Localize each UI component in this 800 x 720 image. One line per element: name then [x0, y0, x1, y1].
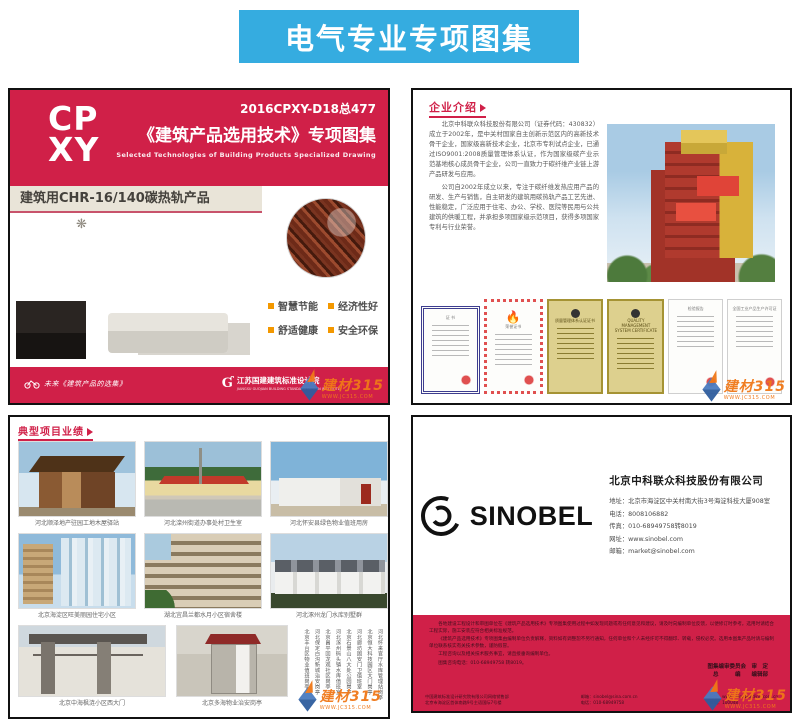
certificate: 🔥 荣誉证书 — [484, 299, 543, 394]
certificate-label: 检验报告 — [688, 306, 704, 311]
red-seal-icon — [461, 375, 471, 385]
page: 电气专业专项图集 CP XY 2016CPXY-D18总477 《建筑产品选用技… — [0, 0, 800, 720]
project-caption: 北京中海枫涟小区西大门 — [18, 700, 166, 707]
certificate-label: QUALITY MANAGEMENT SYSTEM CERTIFICATE — [613, 318, 659, 333]
jc315-text: 建材315 — [320, 691, 382, 704]
project-caption: 河北怀安县绿色物业值班用房 — [270, 520, 388, 527]
feature-item: 经济性好 — [328, 298, 386, 313]
project-item: 河北涿州龙门水库别墅群 — [270, 533, 388, 619]
jc315-watermark: 建材315WWW.JC315.COM — [704, 381, 786, 401]
feature-label: 经济性好 — [338, 298, 378, 313]
project-caption: 河北滦州街道办事处村卫生室 — [144, 520, 262, 527]
certificate-textlines — [557, 328, 594, 362]
back-cover-top: SINOBEL 北京中科联众科技股份有限公司 地址：北京市海淀区中关村南大街3号… — [413, 417, 790, 615]
cover-side-panel: 智慧节能 经济性好 舒适健康 安全环保 — [262, 186, 388, 367]
contact-website: 网址：www.sinobel.com — [609, 534, 785, 547]
publisher-mark-icon: Ɠ — [222, 376, 233, 391]
project-caption: 湖北宜昌兰都水月小区宿舍楼 — [144, 612, 262, 619]
certificate-textlines — [677, 316, 714, 350]
jc315-text: 建材315 — [322, 380, 384, 393]
band-footer-col: 中国建筑标准设计研究院有限公司网络销售部 北京市海淀区首体南路9号主语国际7号楼 — [425, 694, 509, 706]
vertical-list-item: 北京恒大科技园区大门岗亭 — [365, 629, 374, 695]
page-title-banner: 电气专业专项图集 — [239, 10, 579, 63]
bullet-icon — [328, 303, 334, 309]
band-footer-col: 邮箱：sinobel@sina.com.cn 电话：010-68949758 — [581, 694, 638, 706]
projects-section-header: 典型项目业绩 — [18, 423, 93, 441]
contact-block: 北京中科联众科技股份有限公司 地址：北京市海淀区中关村南大街3号海淀科技大厦90… — [609, 473, 785, 559]
vertical-list-item: 北京石景山八大处公园岗亭 — [344, 629, 353, 695]
jc315-watermark: 建材315WWW.JC315.COM — [705, 690, 787, 710]
project-item: 河北滦州街道办事处村卫生室 — [144, 441, 262, 527]
jc315-logo-icon — [298, 687, 316, 711]
signature-line: 总 编 编辑部 — [707, 671, 768, 679]
sinobel-logo-text: SINOBEL — [470, 501, 594, 532]
certificate-textlines — [495, 334, 532, 368]
cpxy-logo: CP XY — [48, 103, 99, 165]
bullet-icon — [268, 327, 274, 333]
signature-block: 图集编审委员会 审 定 总 编 编辑部 — [707, 663, 768, 679]
jc315-url: WWW.JC315.COM — [320, 705, 382, 711]
certificate-textlines — [617, 338, 654, 372]
project-item: 湖北宜昌兰都水月小区宿舍楼 — [144, 533, 262, 619]
sinobel-logo: SINOBEL — [418, 493, 594, 539]
feature-label: 舒适健康 — [278, 322, 318, 337]
contact-address: 地址：北京市海淀区中关村南大街3号海淀科技大厦908室 — [609, 496, 785, 509]
jc315-text: 建材315 — [724, 381, 786, 394]
carbon-rail-product-photo — [286, 198, 366, 278]
emblem-icon — [571, 309, 580, 318]
project-photo — [18, 625, 166, 697]
project-photo — [270, 441, 388, 517]
band-paragraph: 各地建设工程设计和审图单位在《建筑产品选用技术》专项图集使用过程中如发现问题或有… — [429, 622, 774, 635]
project-photo — [270, 533, 388, 609]
certificate-label: 质量管理体系认证证书 — [555, 318, 595, 323]
projects-page-image[interactable]: 典型项目业绩 河北顺泽地产驻园工地木屋驿站 河北滦州街道办事处村卫生室 河北怀安… — [8, 415, 390, 719]
vertical-list-item: 河北保定白沟新城治安岗亭 — [313, 629, 322, 695]
feature-list: 智慧节能 经济性好 舒适健康 安全环保 — [268, 298, 386, 337]
intro-paragraph: 北京中科联众科技股份有限公司（证券代码：430832）成立于2002年，是中关村… — [429, 120, 599, 180]
project-item: 北京海淀区旺美丽园住宅小区 — [18, 533, 136, 619]
certificate: 质量管理体系认证证书 — [547, 299, 604, 394]
project-caption: 北京多海物业治安岗亭 — [176, 700, 288, 707]
certificate-label: 全国工业产品生产许可证 — [733, 306, 777, 311]
project-item: 河北顺泽地产驻园工地木屋驿站 — [18, 441, 136, 527]
flame-icon: 🔥 — [506, 310, 521, 324]
jc315-watermark: 建材315WWW.JC315.COM — [302, 380, 384, 400]
back-cover-image[interactable]: SINOBEL 北京中科联众科技股份有限公司 地址：北京市海淀区中关村南大街3号… — [411, 415, 792, 713]
company-intro-image[interactable]: 企业介绍 北京中科联众科技股份有限公司（证券代码：430832）成立于2002年… — [411, 88, 792, 405]
certificate-textlines — [432, 325, 469, 359]
jc315-text: 建材315 — [725, 690, 787, 703]
project-photo — [18, 533, 136, 609]
band-paragraph: 工程咨询以及相关技术服务事宜，请直接垂询编制单位。 — [429, 652, 774, 659]
company-building-photo — [607, 124, 775, 282]
product-title: 建筑用CHR-16/140碳热轨产品 — [10, 186, 262, 213]
intro-section-header: 企业介绍 — [429, 99, 486, 118]
cover-footer-slogan: 未来《建筑产品的选集》 — [44, 379, 127, 389]
cover-footer-left: 未来《建筑产品的选集》 — [24, 379, 127, 389]
red-seal-icon — [524, 375, 534, 385]
chandelier-decor: ❋ — [76, 217, 87, 232]
certificate-label: 荣誉证书 — [505, 324, 521, 329]
jc315-url: WWW.JC315.COM — [724, 395, 786, 401]
bicycle-icon — [24, 379, 40, 389]
jc315-url: WWW.JC315.COM — [322, 394, 384, 400]
feature-label: 安全环保 — [338, 322, 378, 337]
certificate: 证 书 — [421, 306, 480, 394]
feature-label: 智慧节能 — [278, 298, 318, 313]
intro-paragraph: 公司自2002年成立以来，专注于碳纤维发热应用产品的研发、生产与销售，自主研发的… — [429, 183, 599, 233]
jc315-watermark: 建材315WWW.JC315.COM — [300, 691, 382, 711]
project-item: 河北怀安县绿色物业值班用房 — [270, 441, 388, 527]
project-photo — [18, 441, 136, 517]
jc315-logo-icon — [703, 686, 721, 710]
vertical-list-item: 北京昌平回龙观社区岗亭 — [323, 629, 332, 690]
catalogue-title: 《建筑产品选用技术》专项图集 — [116, 121, 376, 146]
project-photo — [144, 533, 262, 609]
jc315-url: WWW.JC315.COM — [725, 704, 787, 710]
bullet-icon — [268, 303, 274, 309]
cover-header-band: CP XY 2016CPXY-D18总477 《建筑产品选用技术》专项图集 Se… — [10, 90, 388, 186]
feature-item: 智慧节能 — [268, 298, 326, 313]
jc315-logo-icon — [300, 376, 318, 400]
bullet-icon — [328, 327, 334, 333]
page-title: 电气专业专项图集 — [285, 16, 533, 58]
project-caption: 河北顺泽地产驻园工地木屋驿站 — [18, 520, 136, 527]
certificate-label: 证 书 — [446, 315, 455, 320]
catalogue-code: 2016CPXY-D18总477 — [116, 100, 376, 117]
project-item: 北京多海物业治安岗亭 — [176, 625, 288, 707]
jc315-logo-icon — [702, 377, 720, 401]
project-photo — [144, 441, 262, 517]
sinobel-logo-icon — [418, 493, 464, 539]
project-photo — [176, 625, 288, 697]
band-paragraph: 《建筑产品选用技术》专项图集由编制单位负责解释，资料如有调整恕不另行通知，任何单… — [429, 637, 774, 650]
contact-fax: 传真：010-68949758转8019 — [609, 521, 785, 534]
vertical-list-item: 河北廊坊固安门卫值班室 — [355, 629, 364, 690]
vertical-list-item: 河北涿州码头镇水库值班室 — [334, 629, 343, 695]
company-name: 北京中科联众科技股份有限公司 — [609, 473, 785, 488]
living-room-photo: ❋ — [10, 213, 262, 367]
catalogue-cover-image[interactable]: CP XY 2016CPXY-D18总477 《建筑产品选用技术》专项图集 Se… — [8, 88, 390, 405]
certificate: QUALITY MANAGEMENT SYSTEM CERTIFICATE — [607, 299, 664, 394]
feature-item: 舒适健康 — [268, 322, 326, 337]
certificate-textlines — [736, 316, 773, 350]
signature-line: 图集编审委员会 审 定 — [707, 663, 768, 671]
project-caption: 河北涿州龙门水库别墅群 — [270, 612, 388, 619]
contact-phone: 电话：8008106882 — [609, 509, 785, 522]
emblem-icon — [631, 309, 640, 318]
cpxy-logo-bottom: XY — [48, 134, 99, 165]
catalogue-subtitle-en: Selected Technologies of Building Produc… — [116, 151, 376, 159]
project-caption: 北京海淀区旺美丽园住宅小区 — [18, 612, 136, 619]
intro-text-column: 北京中科联众科技股份有限公司（证券代码：430832）成立于2002年，是中关村… — [429, 120, 599, 236]
feature-item: 安全环保 — [328, 322, 386, 337]
project-item: 北京中海枫涟小区西大门 — [18, 625, 166, 707]
contact-email: 邮箱：market@sinobel.com — [609, 546, 785, 559]
